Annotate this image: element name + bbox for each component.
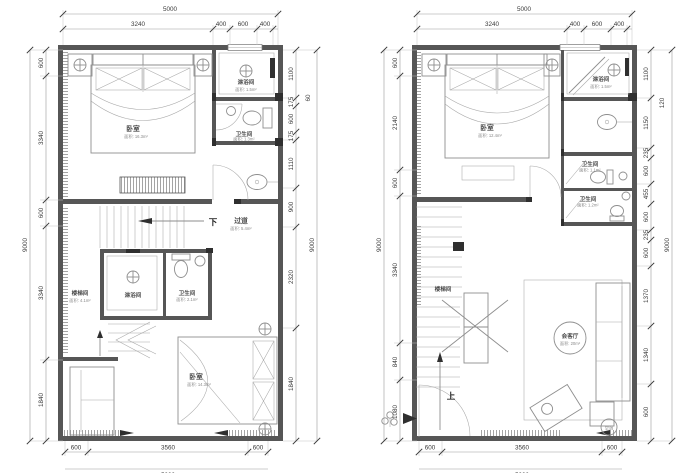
dim-label: 455 [643,188,650,199]
sofa [596,283,630,401]
sink-icon [619,172,627,180]
wash-basin [247,175,278,190]
room-area: 面积: 2.1m² [176,296,198,303]
dim-label: 1080 [392,405,399,420]
room-label: 卧室 [189,372,203,381]
stairs-upper [100,206,184,248]
dim-label: 400 [260,21,271,28]
bath-mid [172,254,205,278]
room-label: 卧室 [126,124,140,133]
dim-label: 120 [659,97,666,108]
threshold-arrow [214,430,228,436]
door-arc [530,166,561,197]
room-area: 面积: 1.5m² [590,83,612,90]
dim-label: 600 [392,57,399,68]
desk-and-chair [530,384,582,431]
toilet-icon [591,171,606,183]
room-label: 楼梯间 [435,285,452,293]
nightstand [68,54,92,76]
dresser [462,166,514,180]
corridor-door [213,165,248,200]
threshold-arrow [120,430,134,436]
door-arc [419,385,470,436]
floor-plan-drawing: 卧室 面积: 16.3m² 淋浴间 面积: 1.5m² 卫生间 面积: 1.3m… [0,0,694,473]
dim-label: 600 [607,445,618,452]
dim-label: 600 [71,445,82,452]
dim-label: 1340 [643,348,650,363]
toilet-icon [611,206,624,217]
dim-label: 1110 [288,157,295,171]
dim-label: 400 [216,21,227,28]
dim-label: 600 [38,207,45,218]
room-label: 淋浴间 [238,78,255,86]
dim-label: 600 [425,445,436,452]
left-plan-room-labels: 卧室 面积: 16.3m² 淋浴间 面积: 1.5m² 卫生间 面积: 1.3m… [69,78,257,388]
dim-label: 400 [614,21,625,28]
double-bed [445,54,549,158]
door-arc [216,104,242,130]
dim-label: 3240 [485,21,500,28]
stair-flight [464,293,488,363]
dim-label: 840 [392,356,399,367]
left-plan-furniture [68,53,278,435]
room-area: 面积: 1.3m² [233,136,255,143]
threshold-hatch [480,430,560,436]
dim-label: 600 [643,247,650,258]
room-label: 卫生间 [179,289,196,297]
sink-icon [622,192,630,200]
toilet-icon [243,111,261,125]
room-area: 面积: 1.1m² [579,167,601,174]
dim-label: 600 [643,406,650,417]
threshold-hatch [610,430,632,436]
room-label: 淋浴间 [125,291,142,299]
corridor-arrow [138,218,204,224]
dim-label: 5000 [163,6,178,13]
dim-label: 9000 [22,238,29,253]
fan-symbol [259,323,271,335]
dim-label: 1100 [643,67,650,81]
dim-label: 5000 [517,6,532,13]
dim-label: 9000 [309,238,316,253]
room-area: 面积: 5.4m² [230,225,252,232]
room-label: 会客厅 [562,332,579,340]
wall-hatch [63,206,68,354]
bedroom-door [530,166,561,197]
dim-label: 175 [288,130,295,141]
dim-label: 600 [253,445,264,452]
nightstand [194,54,212,76]
left-plan-walls [58,45,283,442]
dim-label: 3340 [38,131,45,146]
dim-label: 9000 [376,238,383,253]
radiator [120,177,185,193]
dim-label: 1150 [643,116,650,130]
dim-label: 400 [570,21,581,28]
dim-label: 900 [288,201,295,212]
left-floor-plan: 卧室 面积: 16.3m² 淋浴间 面积: 1.5m² 卫生间 面积: 1.3m… [22,6,320,473]
dim-label: 1840 [288,377,295,392]
room-area: 面积: 20m² [560,340,581,347]
dim-label: 3340 [392,263,399,278]
nightstand [422,54,446,76]
room-area: 面积: 14.3m² [187,381,211,388]
dim-label: 1840 [38,393,45,408]
sink-icon [195,256,205,266]
dim-label: 600 [238,21,249,28]
door-arc [213,165,248,200]
dim-label: 1100 [288,67,295,81]
room-area: 面积: 1.5m² [235,86,257,93]
floor-plan-page: 卧室 面积: 16.3m² 淋浴间 面积: 1.5m² 卫生间 面积: 1.3m… [0,0,694,473]
room-label: 楼梯间 [72,289,89,297]
dim-label: 600 [38,57,45,68]
dim-label: 175 [288,96,295,107]
fan-symbol [259,423,271,435]
dim-label: 600 [592,21,603,28]
dim-label: 3560 [161,445,176,452]
stairs-down-label: 下 [209,217,218,227]
ac-label: 空调 [605,425,613,432]
sink-icon [227,107,236,116]
dim-label: 600 [392,177,399,188]
room-area: 面积: 12.4m² [478,132,502,139]
living-area [524,280,630,435]
dim-label: 60 [305,94,312,102]
dim-label: 600 [643,211,650,222]
stairs [416,207,508,430]
dim-label: 2320 [288,270,295,285]
room-area: 面积: 4.1m² [69,297,91,304]
dim-label: 1370 [643,289,650,304]
dim-label: 235 [643,229,650,240]
wall-hatch [417,50,421,195]
room-label: 过道 [234,216,248,225]
dim-label: 235 [643,147,650,158]
right-floor-plan: 卧室 面积: 12.4m² 淋浴间 面积: 1.5m² 卫生间 面积: 1.1m… [376,6,675,473]
room-label: 淋浴间 [593,75,610,83]
dim-label: 3340 [38,286,45,301]
room-area: 面积: 16.3m² [124,133,148,140]
wash-basin [598,115,633,130]
dim-label: 3560 [515,445,530,452]
threshold-hatch [228,430,276,436]
dim-label: 3240 [131,21,146,28]
dim-label: 600 [643,165,650,176]
stairs-up-label: 上 [447,391,456,401]
room-label: 卧室 [480,123,494,132]
dim-label: 600 [288,113,295,124]
dim-label: 9000 [664,238,671,253]
shower-room-mid [107,249,157,310]
room-area: 面积: 1.2m² [577,202,599,209]
sofa [70,367,114,435]
stairs-lower [97,322,156,358]
wall-hatch [63,50,68,197]
toilet-icon [175,261,188,278]
dim-label: 2140 [392,116,399,131]
rug [524,280,622,420]
bath-top [216,104,272,130]
right-plan-walls [412,45,637,442]
